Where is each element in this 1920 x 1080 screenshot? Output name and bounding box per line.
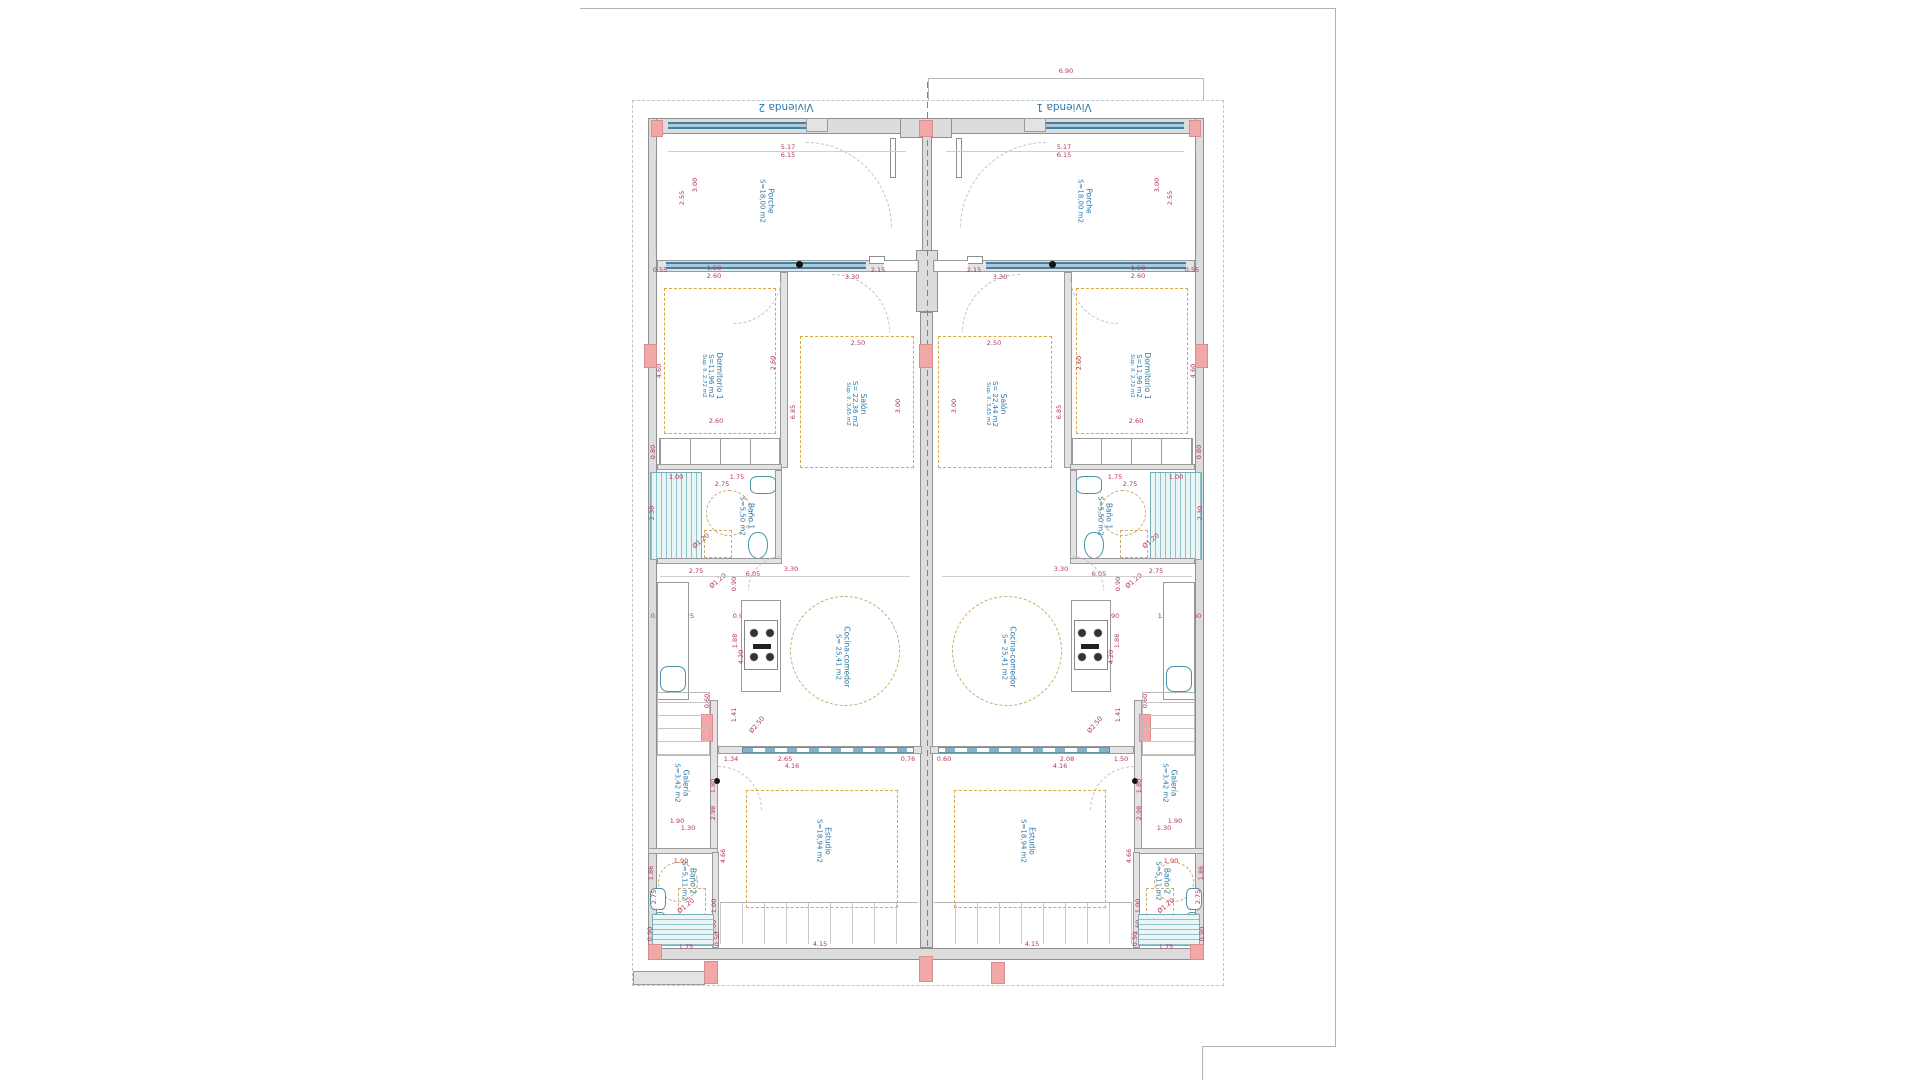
dim-slide-c: 0.76 xyxy=(901,756,915,763)
corner-pink xyxy=(651,120,663,137)
dim-entry-a-2: 0.55 xyxy=(1185,267,1199,274)
party-pink-mid xyxy=(919,344,933,368)
room-label-porche-2: PorcheS=18,00 m2 xyxy=(1076,179,1093,223)
bath1-wall-top-2 xyxy=(1070,464,1195,470)
room-label-salon-line1: S= 22,44 m2 xyxy=(991,381,999,427)
dim-dorm-c-2: 2.60 xyxy=(1076,356,1083,370)
bath1-shower-hatch-2 xyxy=(1150,472,1202,560)
dim-galeria-d: 1.30 xyxy=(681,825,695,832)
dim-bath1-d: 2.30 xyxy=(649,506,656,520)
estudio-terrace-ticks xyxy=(720,902,918,944)
room-label-dormitorio: Dormitorio 1S=11,96 m2Sup. Il. 2,72 m2 xyxy=(700,352,724,399)
dim-bath2-e: 0.90 xyxy=(647,927,654,941)
dim-salon-a: 2.50 xyxy=(851,340,865,347)
dim-kitchen-j: 4.20 xyxy=(738,650,745,664)
floor-plan-drawing: 6.90Vivienda 2Vivienda 1PorcheS=18,00 m2… xyxy=(0,0,1920,1080)
kitchen-hob xyxy=(744,620,778,670)
porch-front-window xyxy=(666,262,866,269)
porch-window-top xyxy=(668,122,808,129)
sliding-band-segments xyxy=(742,747,914,753)
porch-dim-line-v-2 xyxy=(1196,158,1197,254)
room-label-salon-line2: Sup. Il. 3,65 m2 xyxy=(984,381,991,427)
dim-tick-left xyxy=(928,78,929,100)
dim-salon-a-2: 2.50 xyxy=(987,340,1001,347)
dim-bath2-c-2: 2.75 xyxy=(1195,890,1202,904)
dim-bath2-b: 1.86 xyxy=(648,866,655,880)
unit-title-vivienda-1: Vivienda 1 xyxy=(1036,101,1091,113)
dim-entry-d-2: 3.30 xyxy=(993,274,1007,281)
room-label-bano1-line1: S=5,50 m2 xyxy=(738,496,746,535)
dim-dorm-c: 2.60 xyxy=(770,356,777,370)
room-label-galeria-line1: S=3,42 m2 xyxy=(1161,763,1169,802)
dim-porch-width-a: 5.17 xyxy=(781,144,795,151)
room-label-estudio-2: EstudioS=18,94 m2 xyxy=(1019,819,1036,863)
room-label-porche-line1: S=18,00 m2 xyxy=(1076,179,1084,223)
dim-entry-d: 3.30 xyxy=(845,274,859,281)
dim-kitchen-c: 0.90 xyxy=(731,577,738,591)
dim-entry-c: 2.60 xyxy=(707,273,721,280)
porch-wall-notch xyxy=(806,118,828,132)
porch-front-window-2 xyxy=(986,262,1186,269)
room-label-bano1: Baño 1S=5,50 m2 xyxy=(738,496,755,535)
dim-galeria-d-2: 1.30 xyxy=(1157,825,1171,832)
dim-porch-depth-a-2: 3.00 xyxy=(1154,178,1161,192)
dim-line-total xyxy=(928,78,1204,79)
porch-door-jamb xyxy=(890,138,896,178)
estudio-terrace-ticks-2 xyxy=(934,902,1132,944)
room-label-estudio-line1: S=18,94 m2 xyxy=(1019,819,1027,863)
dim-porch-width-a-2: 5.17 xyxy=(1057,144,1071,151)
dim-entry-b: 1.50 xyxy=(707,265,721,272)
room-label-galeria-line0: Galería xyxy=(682,763,691,802)
unit-title-vivienda-2: Vivienda 2 xyxy=(758,101,813,113)
galeria-wall-bottom xyxy=(648,848,718,854)
dim-porch-width-b-2: 6.15 xyxy=(1057,152,1071,159)
dim-kitchen-a-2: 2.75 xyxy=(1149,568,1163,575)
dim-bath2-c: 2.75 xyxy=(651,890,658,904)
sliding-band-segments-2 xyxy=(938,747,1110,753)
dim-slide-d-2: 4.16 xyxy=(1053,763,1067,770)
dim-estudio-c-2: 1.00 xyxy=(1135,899,1142,913)
porch-dim-line xyxy=(668,151,906,152)
bath2-floor-hatch-2 xyxy=(1138,914,1200,946)
dim-galeria-b-2: 2.98 xyxy=(1136,806,1143,820)
dim-bath1-b: 1.75 xyxy=(730,474,744,481)
kitchen-dim-line xyxy=(660,576,910,577)
dim-bath2-f-2: 1.75 xyxy=(1159,944,1173,951)
dim-kitchen-a: 2.75 xyxy=(689,568,703,575)
room-label-dormitorio-line0: Dormitorio 1 xyxy=(1143,352,1152,399)
porch-dim-line-v xyxy=(655,158,656,254)
dorm-wall-pink xyxy=(644,344,657,368)
dim-entry-b-2: 1.50 xyxy=(1131,265,1145,272)
room-label-dormitorio-line2: Sup. Il. 2,72 m2 xyxy=(1128,352,1135,399)
dim-slide-d: 4.16 xyxy=(785,763,799,770)
room-label-dormitorio-line1: S=11,96 m2 xyxy=(707,352,715,399)
dim-entry-c-2: 2.60 xyxy=(1131,273,1145,280)
bath1-sink xyxy=(750,476,776,494)
galeria-wall-bottom-2 xyxy=(1134,848,1204,854)
dorm-partition-wall xyxy=(780,272,788,468)
room-label-salon-line2: Sup. Il. 3,65 m2 xyxy=(844,381,851,427)
dim-bath1-c-2: 2.75 xyxy=(1123,481,1137,488)
bottom-step xyxy=(633,971,705,985)
room-label-porche: PorcheS=18,00 m2 xyxy=(758,179,775,223)
galeria-shelves xyxy=(657,692,710,756)
entry-opening-2 xyxy=(935,261,968,271)
room-label-galeria-line0: Galería xyxy=(1170,763,1179,802)
dim-galeria-a: 1.80 xyxy=(710,779,717,793)
porch-dim-line-2 xyxy=(946,151,1184,152)
dim-porch-depth-a: 3.00 xyxy=(692,178,699,192)
dim-salon-b: 3.00 xyxy=(895,399,902,413)
dim-dorm-d-2: 2.60 xyxy=(1129,418,1143,425)
dim-bath2-e-2: 0.90 xyxy=(1199,927,1206,941)
porch-window-top-2 xyxy=(1044,122,1184,129)
floor-plan-sheet: 6.90Vivienda 2Vivienda 1PorcheS=18,00 m2… xyxy=(0,0,1920,1080)
kitchen-hob-2 xyxy=(1074,620,1108,670)
dim-estudio-e: 0.50 xyxy=(714,932,721,946)
room-label-dormitorio-line1: S=11,96 m2 xyxy=(1135,352,1143,399)
dim-bath1-b-2: 1.75 xyxy=(1108,474,1122,481)
dim-kitchen-m: 1.41 xyxy=(731,708,738,722)
dim-dorm-d: 2.60 xyxy=(709,418,723,425)
kitchen-sink xyxy=(660,666,686,692)
dim-galeria-a-2: 1.80 xyxy=(1136,779,1143,793)
room-label-estudio-line0: Estudio xyxy=(1028,819,1037,863)
bath1-wall-right xyxy=(775,470,782,562)
porch-door-jamb-2 xyxy=(956,138,962,178)
room-label-cocina-line0: Cocina-comedor xyxy=(843,626,852,687)
galeria-shelves-2 xyxy=(1142,692,1195,756)
dim-bath1-a: 1.00 xyxy=(669,474,683,481)
entry-door-leaf xyxy=(869,256,885,264)
room-label-estudio-line1: S=18,94 m2 xyxy=(815,819,823,863)
page-border-step-h xyxy=(1202,1046,1336,1047)
dim-estudio-a: 4.66 xyxy=(720,849,727,863)
dim-entry-e: 2.15 xyxy=(871,267,885,274)
dim-porch-width-b: 6.15 xyxy=(781,152,795,159)
dim-bath1-c: 2.75 xyxy=(715,481,729,488)
dim-bath1-d-2: 2.30 xyxy=(1197,506,1204,520)
room-label-galeria: GaleríaS=3,42 m2 xyxy=(673,763,690,802)
corner-pink-2 xyxy=(1189,120,1201,137)
room-label-galeria-line1: S=3,42 m2 xyxy=(673,763,681,802)
room-label-salon-line0: Salón xyxy=(999,381,1008,427)
page-border-top xyxy=(580,8,1336,9)
room-label-porche-line0: Porche xyxy=(767,179,776,223)
room-label-porche-line0: Porche xyxy=(1085,179,1094,223)
entry-door-leaf-2 xyxy=(967,256,983,264)
dim-estudio-b: 4.15 xyxy=(813,941,827,948)
room-label-estudio-line0: Estudio xyxy=(824,819,833,863)
dim-bath2-b-2: 1.86 xyxy=(1198,866,1205,880)
room-label-dormitorio-line0: Dormitorio 1 xyxy=(715,352,724,399)
window-pivot-dot xyxy=(796,261,803,268)
room-label-salon: SalónS= 22,36 m2Sup. Il. 3,65 m2 xyxy=(844,381,868,427)
dim-kitchen-e-2: 3.30 xyxy=(1054,566,1068,573)
room-label-bano1-line0: Baño 1 xyxy=(1105,496,1114,535)
dim-entry-a: 0.55 xyxy=(653,267,667,274)
dim-kitchen-i-2: 1.88 xyxy=(1114,634,1121,648)
dim-salon-c: 6.85 xyxy=(790,405,797,419)
dim-kitchen-j-2: 4.20 xyxy=(1108,650,1115,664)
room-label-dormitorio-line2: Sup. Il. 2,72 m2 xyxy=(700,352,707,399)
room-label-estudio: EstudioS=18,94 m2 xyxy=(815,819,832,863)
room-label-galeria-2: GaleríaS=3,42 m2 xyxy=(1161,763,1178,802)
room-label-cocina-line1: S= 25,41 m2 xyxy=(834,626,842,687)
room-label-bano1-line1: S=5,50 m2 xyxy=(1096,496,1104,535)
dim-kitchen-e: 3.30 xyxy=(784,566,798,573)
dorm-closet-2 xyxy=(1072,438,1193,466)
dorm-closet xyxy=(659,438,780,466)
party-pink-bottom xyxy=(919,956,933,982)
bottom-wall-pink-2 xyxy=(1190,944,1204,960)
dim-bath2-f: 1.75 xyxy=(679,944,693,951)
dorm-partition-wall-2 xyxy=(1064,272,1072,468)
bath2-floor-hatch xyxy=(652,914,714,946)
room-label-cocina-line0: Cocina-comedor xyxy=(1009,626,1018,687)
dim-kitchen-m-2: 1.41 xyxy=(1115,708,1122,722)
dim-entry-e-2: 2.15 xyxy=(967,267,981,274)
dim-dorm-e: 0.80 xyxy=(650,445,657,459)
page-border-step-v xyxy=(1202,1046,1203,1080)
dim-bath1-a-2: 1.00 xyxy=(1169,474,1183,481)
dim-salon-c-2: 6.85 xyxy=(1056,405,1063,419)
dim-porch-depth-b: 2.55 xyxy=(679,191,686,205)
page-border-right xyxy=(1335,8,1336,1047)
dorm-wall-pink-2 xyxy=(1195,344,1208,368)
porch-wall-notch-2 xyxy=(1024,118,1046,132)
dim-salon-b-2: 3.00 xyxy=(951,399,958,413)
room-label-cocina-2: Cocina-comedorS= 25,41 m2 xyxy=(1000,626,1017,687)
room-label-bano1-line0: Baño 1 xyxy=(747,496,756,535)
party-pink-top xyxy=(919,120,933,137)
kitchen-dim-line-2 xyxy=(942,576,1192,577)
party-axis-red xyxy=(927,140,928,950)
bath1-sink-2 xyxy=(1076,476,1102,494)
entry-opening xyxy=(884,261,917,271)
bath1-toilet xyxy=(748,532,768,559)
room-label-salon-line0: Salón xyxy=(859,381,868,427)
bottom-wall-pink xyxy=(648,944,662,960)
dim-estudio-b-2: 4.15 xyxy=(1025,941,1039,948)
dim-slide-c-2: 0.60 xyxy=(937,756,951,763)
room-label-salon-2: SalónS= 22,44 m2Sup. Il. 3,65 m2 xyxy=(984,381,1008,427)
dim-slide-a: 1.34 xyxy=(724,756,738,763)
room-label-bano1-2: Baño 1S=5,50 m2 xyxy=(1096,496,1113,535)
bath1-toilet-2 xyxy=(1084,532,1104,559)
dim-estudio-c: 1.00 xyxy=(711,899,718,913)
dim-tick-right xyxy=(1203,78,1204,100)
bottom-right-pink xyxy=(991,962,1005,984)
dim-kitchen-i: 1.88 xyxy=(732,634,739,648)
room-label-dormitorio-2: Dormitorio 1S=11,96 m2Sup. Il. 2,72 m2 xyxy=(1128,352,1152,399)
dim-porch-depth-b-2: 2.55 xyxy=(1167,191,1174,205)
room-label-porche-line1: S=18,00 m2 xyxy=(758,179,766,223)
dim-dorm-e-2: 0.80 xyxy=(1196,445,1203,459)
window-pivot-dot-2 xyxy=(1049,261,1056,268)
party-axis-red-top xyxy=(927,82,928,118)
dim-galeria-b: 2.98 xyxy=(710,806,717,820)
dim-total-width: 6.90 xyxy=(1059,68,1073,75)
bath1-wall-top xyxy=(657,464,782,470)
room-label-cocina: Cocina-comedorS= 25,41 m2 xyxy=(834,626,851,687)
dim-slide-a-2: 1.50 xyxy=(1114,756,1128,763)
kitchen-sink-2 xyxy=(1166,666,1192,692)
bottom-step-pink xyxy=(704,961,718,984)
room-label-cocina-line1: S= 25,41 m2 xyxy=(1000,626,1008,687)
dim-estudio-a-2: 4.66 xyxy=(1126,849,1133,863)
room-label-salon-line1: S= 22,36 m2 xyxy=(851,381,859,427)
dim-kitchen-c-2: 0.90 xyxy=(1115,577,1122,591)
